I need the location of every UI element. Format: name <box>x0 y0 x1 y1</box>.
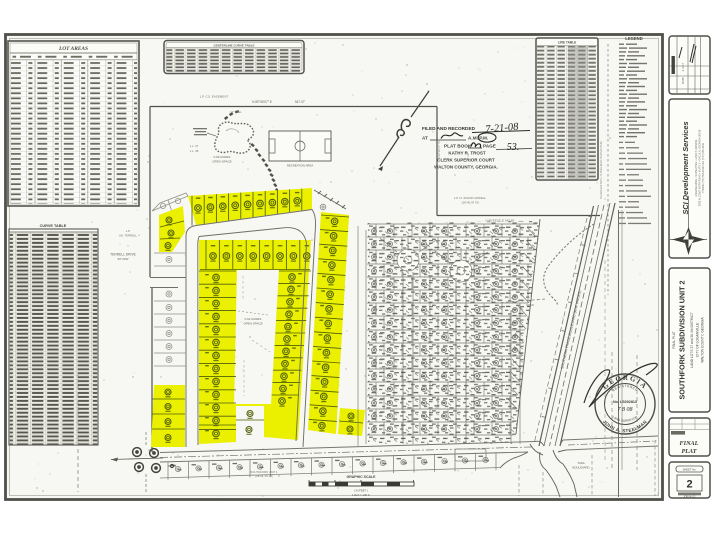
svg-text:N 89°50′07″ E: N 89°50′07″ E <box>252 100 272 104</box>
svg-text:KATHY R. TROST: KATHY R. TROST <box>448 151 486 156</box>
svg-text:CLERK SUPERIOR COURT: CLERK SUPERIOR COURT <box>437 158 495 163</box>
svg-text:1 inch = 100 ft.: 1 inch = 100 ft. <box>352 493 371 497</box>
svg-text:PLAT BOOK: PLAT BOOK <box>444 144 472 149</box>
svg-text:WALTON COUNTY, GEORGIA.: WALTON COUNTY, GEORGIA. <box>434 165 498 170</box>
svg-text:CITY OF LOGANVILLE: CITY OF LOGANVILLE <box>696 322 700 357</box>
svg-text:S 00°29′13″ W: S 00°29′13″ W <box>437 141 441 159</box>
svg-text:TERRELL DRIVE: TERRELL DRIVE <box>110 253 137 257</box>
svg-text:UN. TERRELL: UN. TERRELL <box>119 234 138 238</box>
svg-text:DATE: DATE <box>682 77 685 84</box>
svg-text:CHARLESTON • STEELMAN SURVEYIN: CHARLESTON • STEELMAN SURVEYING <box>599 140 603 198</box>
svg-text:0.62 ACRES: 0.62 ACRES <box>245 317 262 321</box>
svg-text:L.P. N. SNOW HOWELL: L.P. N. SNOW HOWELL <box>454 196 487 200</box>
svg-text:LOT AREAS: LOT AREAS <box>58 46 88 52</box>
svg-text:2: 2 <box>686 479 692 491</box>
svg-text:(PB 96, PG 48): (PB 96, PG 48) <box>255 474 273 478</box>
svg-text:LINE TABLE: LINE TABLE <box>558 40 577 44</box>
svg-text:OPEN SPACE: OPEN SPACE <box>379 366 397 370</box>
svg-text:A 12/17: A 12/17 <box>682 63 685 72</box>
svg-text:SHEET No.: SHEET No. <box>683 468 697 472</box>
svg-text:10′ TRAIL: 10′ TRAIL <box>230 110 242 114</box>
svg-text:CENTERLINE CURVE TABLE: CENTERLINE CURVE TABLE <box>213 43 254 47</box>
svg-text:50' R/W: 50' R/W <box>118 257 129 261</box>
svg-text:7 8 08: 7 8 08 <box>618 407 633 413</box>
svg-text:OPEN SPACE: OPEN SPACE <box>243 322 262 326</box>
svg-text:AT: AT <box>422 136 428 141</box>
svg-text:547.07': 547.07' <box>295 100 306 104</box>
svg-text:L.L. 38: L.L. 38 <box>190 149 199 153</box>
svg-text:JOB 04-112: JOB 04-112 <box>683 496 696 498</box>
svg-text:0.99 ACRES: 0.99 ACRES <box>214 155 231 159</box>
svg-text:WALTON COUNTY, GEORGIA: WALTON COUNTY, GEORGIA <box>701 317 705 363</box>
svg-text:FILED AND RECORDED: FILED AND RECORDED <box>422 126 476 131</box>
svg-text:FINAL PLAT: FINAL PLAT <box>672 331 676 349</box>
svg-text:SOUTHFORK SUBDIVISION UNIT 2: SOUTHFORK SUBDIVISION UNIT 2 <box>678 280 687 399</box>
svg-text:126-45,78 7/8: 126-45,78 7/8 <box>461 201 479 205</box>
svg-text:BOULEVARD: BOULEVARD <box>572 466 589 470</box>
svg-text:PHONE (770) 555-1040 FAX (770: PHONE (770) 555-1040 FAX (770) 555-1041 <box>702 142 705 192</box>
svg-text:LEGEND: LEGEND <box>625 36 642 41</box>
svg-text:RECREATION AREA: RECREATION AREA <box>287 164 314 168</box>
svg-text:L.P.: L.P. <box>126 229 131 233</box>
svg-text:FINAL: FINAL <box>680 440 699 447</box>
svg-text:L.P. CO. EASEMENT: L.P. CO. EASEMENT <box>200 95 229 99</box>
svg-text:53.: 53. <box>507 142 520 153</box>
svg-text:OPEN: OPEN <box>526 303 534 307</box>
svg-text:OPEN SPACE: OPEN SPACE <box>212 160 231 164</box>
svg-text:TARA: TARA <box>577 461 584 465</box>
svg-text:GRAPHIC SCALE: GRAPHIC SCALE <box>347 475 377 479</box>
svg-text:L.L. 37: L.L. 37 <box>190 144 199 148</box>
svg-text:SOUTHFORK UNIT 1: SOUTHFORK UNIT 1 <box>250 470 278 474</box>
svg-text:PAGE: PAGE <box>483 144 496 149</box>
svg-text:PLAT: PLAT <box>681 448 696 455</box>
svg-text:No. LS002813: No. LS002813 <box>613 400 637 404</box>
svg-text:CURVE TABLE: CURVE TABLE <box>40 224 67 228</box>
svg-text:LAND LOTS 37 and 38 4th: LAND LOTS 37 and 38 4th DISTRICT <box>690 312 694 368</box>
svg-text:( IN FEET ): ( IN FEET ) <box>354 489 368 493</box>
